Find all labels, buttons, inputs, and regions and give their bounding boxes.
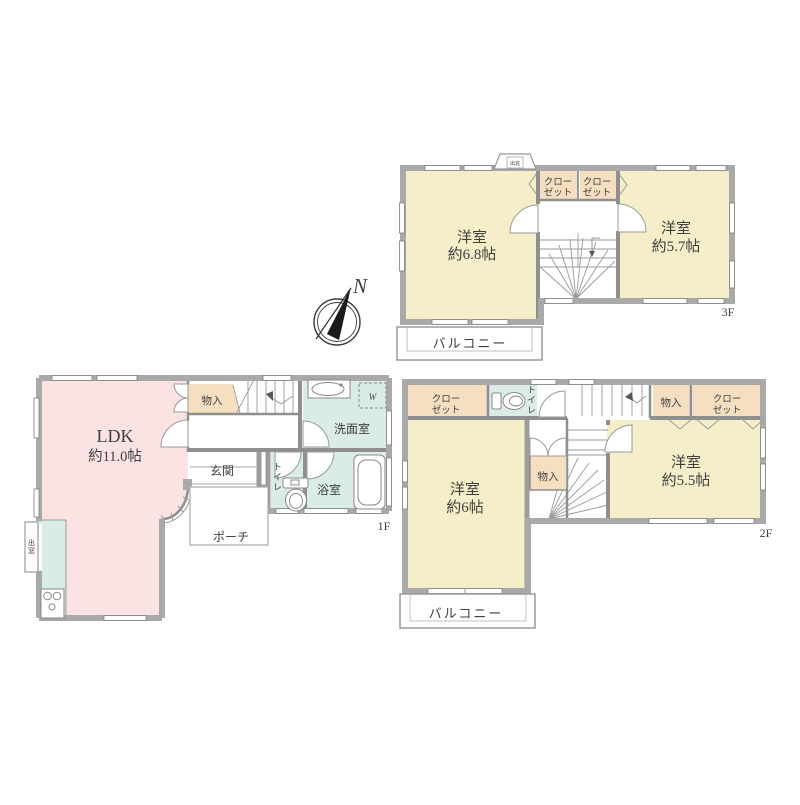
storage-north-label-2f: 物入 bbox=[661, 396, 682, 409]
floor-label-3f: 3F bbox=[722, 305, 735, 319]
closet-nw-label2-2f: ゼット bbox=[432, 404, 461, 416]
entrance-label: 玄関 bbox=[210, 463, 234, 478]
balcony-3f: バルコニー bbox=[397, 327, 542, 360]
balcony-label-2f: バルコニー bbox=[429, 606, 504, 621]
storage-center-label-2f: 物入 bbox=[538, 470, 559, 483]
closet-west-label1-3f: クロー bbox=[544, 177, 573, 188]
closet-west-label2-3f: ゼット bbox=[544, 187, 573, 199]
toilet-icon-2f bbox=[492, 393, 525, 410]
ldk-size-label: 約11.0帖 bbox=[88, 448, 142, 465]
washbasin-icon bbox=[308, 380, 350, 398]
balcony-label-3f: バルコニー bbox=[433, 336, 508, 351]
bay-window-1f: 出窓 bbox=[25, 522, 42, 572]
floor-label-1f: 1F bbox=[378, 519, 391, 533]
bay-window-label-3f: 出窓 bbox=[510, 160, 520, 167]
toilet-label-1f: トイレ bbox=[272, 462, 282, 492]
room-east-name-3f: 洋室 bbox=[661, 220, 691, 237]
room-west-name-3f: 洋室 bbox=[457, 229, 487, 246]
floor-label-2f: 2F bbox=[760, 526, 773, 540]
room-west-size-2f: 約6帖 bbox=[446, 499, 484, 516]
room-east-name-2f: 洋室 bbox=[671, 454, 701, 471]
room-east-size-3f: 約5.7帖 bbox=[652, 238, 701, 255]
porch-1f: ポーチ bbox=[190, 487, 268, 545]
floor-plan-3f: 出窓 バルコニー 洋室 約6.8帖 洋室 約5.7帖 クロー ゼット クロー ゼ… bbox=[397, 154, 735, 360]
closet-nw-label1-2f: クロー bbox=[432, 394, 461, 405]
bathtub-icon bbox=[354, 455, 385, 509]
bay-window-3f: 出窓 bbox=[494, 154, 536, 169]
closet-east-label2-3f: ゼット bbox=[583, 187, 612, 199]
porch-label: ポーチ bbox=[213, 530, 249, 544]
storage-label-1f: 物入 bbox=[202, 394, 223, 407]
floor-plan-1f: W 出窓 ポーチ bbox=[25, 375, 392, 621]
bathroom-label: 浴室 bbox=[317, 482, 341, 497]
floorplan-canvas: N bbox=[0, 0, 800, 800]
toilet-icon-1f bbox=[283, 478, 308, 511]
floor-plan-2f: バルコニー クロー ゼット トイレ 物入 クロー ゼット 洋室 約6帖 物入 洋… bbox=[400, 380, 773, 629]
ldk-name-label: LDK bbox=[97, 426, 134, 446]
bay-window-label-1f: 出窓 bbox=[28, 538, 36, 555]
closet-ne-label1-2f: クロー bbox=[713, 394, 742, 405]
compass-north-label: N bbox=[352, 274, 368, 298]
compass-north-icon: N bbox=[314, 274, 368, 345]
toilet-label-2f: トイレ bbox=[526, 385, 536, 415]
room-west-name-2f: 洋室 bbox=[450, 481, 480, 498]
compass-needle bbox=[327, 287, 351, 340]
closet-ne-label2-2f: ゼット bbox=[713, 404, 742, 416]
balcony-2f: バルコニー bbox=[400, 594, 535, 628]
room-west-size-3f: 約6.8帖 bbox=[448, 246, 497, 263]
washroom-label: 洗面室 bbox=[334, 421, 370, 436]
stove-icon bbox=[41, 589, 64, 618]
closet-east-label1-3f: クロー bbox=[583, 177, 612, 188]
room-east-size-2f: 約5.5帖 bbox=[662, 472, 711, 489]
